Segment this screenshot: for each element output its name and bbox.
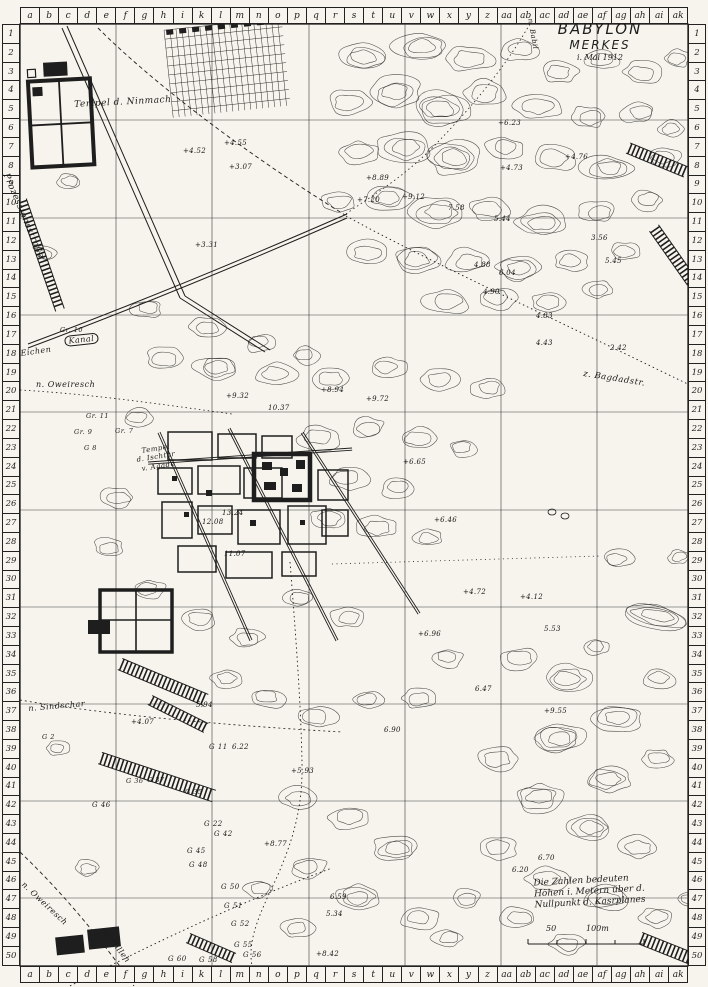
grid-number-cell: 28 <box>2 532 20 551</box>
grid-letter-cell: o <box>268 7 287 24</box>
grid-number-cell: 20 <box>688 381 706 400</box>
grid-letter-cell: ab <box>516 7 535 24</box>
map-title-date: i. Mai 1912 <box>540 53 660 62</box>
grid-number-cell: 34 <box>688 645 706 664</box>
grid-number-cell: 12 <box>688 231 706 250</box>
grid-number-cell: 23 <box>2 438 20 457</box>
grid-letter-cell: q <box>306 966 325 983</box>
grid-letter-cell: ac <box>535 966 554 983</box>
grid-number-cell: 18 <box>688 344 706 363</box>
grid-letter-cell: i <box>173 7 192 24</box>
grid-letter-cell: c <box>58 966 77 983</box>
grid-number-cell: 33 <box>688 626 706 645</box>
grid-letter-cell: a <box>20 966 39 983</box>
grid-number-cell: 19 <box>688 363 706 382</box>
grid-number-cell: 48 <box>2 908 20 927</box>
grid-number-cell: 36 <box>2 682 20 701</box>
grid-number-cell: 1 <box>2 24 20 43</box>
grid-letter-cell: b <box>39 966 58 983</box>
grid-number-cell: 38 <box>2 720 20 739</box>
grid-letter-cell: m <box>230 7 249 24</box>
grid-letter-cell: n <box>249 7 268 24</box>
map-title-name: BABYLON <box>540 20 660 38</box>
grid-number-cell: 21 <box>2 400 20 419</box>
grid-letter-cell: ak <box>668 7 688 24</box>
grid-number-cell: 8 <box>2 156 20 175</box>
grid-number-cell: 49 <box>2 927 20 946</box>
grid-number-cell: 8 <box>688 156 706 175</box>
grid-number-cell: 19 <box>2 363 20 382</box>
grid-number-cell: 26 <box>2 494 20 513</box>
grid-number-cell: 42 <box>688 795 706 814</box>
grid-number-cell: 35 <box>688 664 706 683</box>
grid-number-cell: 10 <box>2 193 20 212</box>
scale-bar: 50 100m <box>524 924 656 952</box>
grid-number-cell: 45 <box>688 852 706 871</box>
grid-letter-cell: i <box>173 966 192 983</box>
grid-letter-cell: k <box>192 966 211 983</box>
grid-number-cell: 30 <box>688 570 706 589</box>
grid-number-cell: 27 <box>688 513 706 532</box>
grid-number-cell: 20 <box>2 381 20 400</box>
grid-letter-cell: v <box>401 7 420 24</box>
grid-letter-cell: ak <box>668 966 688 983</box>
grid-number-cell: 32 <box>688 607 706 626</box>
grid-letter-cell: w <box>420 7 439 24</box>
grid-number-cell: 2 <box>688 43 706 62</box>
grid-number-cell: 37 <box>2 701 20 720</box>
grid-number-cell: 39 <box>688 739 706 758</box>
grid-letter-cell: s <box>344 7 363 24</box>
grid-letter-cell: y <box>458 966 477 983</box>
grid-number-cell: 44 <box>688 833 706 852</box>
grid-letter-cell: p <box>287 7 306 24</box>
grid-number-cell: 3 <box>688 62 706 81</box>
grid-number-cell: 42 <box>2 795 20 814</box>
grid-letter-cell: af <box>592 966 611 983</box>
grid-number-cell: 3 <box>2 62 20 81</box>
grid-number-cell: 14 <box>688 269 706 288</box>
grid-number-cell: 27 <box>2 513 20 532</box>
grid-number-cell: 4 <box>688 80 706 99</box>
grid-letter-cell: aa <box>497 966 516 983</box>
grid-number-cell: 33 <box>2 626 20 645</box>
grid-letter-cell: l <box>211 7 230 24</box>
grid-number-cell: 15 <box>688 287 706 306</box>
grid-letter-cell: ah <box>630 966 649 983</box>
grid-number-cell: 24 <box>2 457 20 476</box>
grid-letter-cell: u <box>382 966 401 983</box>
grid-number-cell: 7 <box>688 137 706 156</box>
grid-number-cell: 39 <box>2 739 20 758</box>
grid-letter-cell: ad <box>554 966 573 983</box>
grid-letter-cell: ai <box>649 966 668 983</box>
grid-letter-cell: d <box>77 966 96 983</box>
grid-number-cell: 41 <box>688 777 706 796</box>
grid-letter-cell: u <box>382 7 401 24</box>
grid-letter-cell: b <box>39 7 58 24</box>
grid-number-cell: 9 <box>2 175 20 194</box>
grid-letter-cell: z <box>478 966 497 983</box>
grid-number-cell: 1 <box>688 24 706 43</box>
grid-number-cell: 16 <box>2 306 20 325</box>
grid-number-cell: 7 <box>2 137 20 156</box>
grid-number-cell: 25 <box>2 476 20 495</box>
grid-number-cell: 4 <box>2 80 20 99</box>
map-sheet: abcdefghiklmnopqrstuvwxyzaaabacadaeafaga… <box>0 0 708 987</box>
grid-number-cell: 15 <box>2 287 20 306</box>
grid-number-cell: 11 <box>688 212 706 231</box>
grid-letter-cell: w <box>420 966 439 983</box>
grid-number-cell: 17 <box>2 325 20 344</box>
grid-number-cell: 50 <box>2 946 20 966</box>
grid-letter-cell: t <box>363 7 382 24</box>
grid-numbers-left: 1234567891011121314151617181920212223242… <box>2 24 20 966</box>
grid-number-cell: 34 <box>2 645 20 664</box>
grid-letter-cell: ab <box>516 966 535 983</box>
grid-number-cell: 6 <box>2 118 20 137</box>
grid-letter-cell: e <box>96 966 115 983</box>
map-canvas <box>0 0 708 987</box>
grid-number-cell: 36 <box>688 682 706 701</box>
grid-number-cell: 26 <box>688 494 706 513</box>
grid-number-cell: 40 <box>688 758 706 777</box>
grid-number-cell: 21 <box>688 400 706 419</box>
grid-number-cell: 41 <box>2 777 20 796</box>
grid-letter-cell: r <box>325 7 344 24</box>
grid-number-cell: 12 <box>2 231 20 250</box>
map-title: BABYLON MERKES i. Mai 1912 <box>540 20 660 62</box>
grid-letter-cell: aa <box>497 7 516 24</box>
grid-letter-cell: m <box>230 966 249 983</box>
grid-letter-cell: e <box>96 7 115 24</box>
grid-number-cell: 9 <box>688 175 706 194</box>
grid-number-cell: 11 <box>2 212 20 231</box>
grid-number-cell: 2 <box>2 43 20 62</box>
grid-letter-cell: c <box>58 7 77 24</box>
grid-number-cell: 24 <box>688 457 706 476</box>
grid-number-cell: 13 <box>688 250 706 269</box>
grid-number-cell: 46 <box>2 871 20 890</box>
grid-number-cell: 49 <box>688 927 706 946</box>
grid-number-cell: 35 <box>2 664 20 683</box>
grid-letters-bottom: abcdefghiklmnopqrstuvwxyzaaabacadaeafaga… <box>20 966 688 983</box>
grid-letter-cell: h <box>153 966 172 983</box>
grid-number-cell: 32 <box>2 607 20 626</box>
grid-number-cell: 31 <box>688 588 706 607</box>
grid-number-cell: 37 <box>688 701 706 720</box>
grid-number-cell: 50 <box>688 946 706 966</box>
grid-number-cell: 31 <box>2 588 20 607</box>
grid-letter-cell: q <box>306 7 325 24</box>
grid-letter-cell: f <box>115 966 134 983</box>
grid-letter-cell: t <box>363 966 382 983</box>
grid-number-cell: 28 <box>688 532 706 551</box>
grid-letter-cell: ae <box>573 966 592 983</box>
grid-number-cell: 25 <box>688 476 706 495</box>
grid-number-cell: 10 <box>688 193 706 212</box>
scale-bar-rule <box>524 924 656 952</box>
grid-number-cell: 44 <box>2 833 20 852</box>
grid-number-cell: 16 <box>688 306 706 325</box>
grid-letter-cell: s <box>344 966 363 983</box>
grid-number-cell: 40 <box>2 758 20 777</box>
grid-number-cell: 22 <box>688 419 706 438</box>
grid-number-cell: 17 <box>688 325 706 344</box>
grid-number-cell: 6 <box>688 118 706 137</box>
grid-number-cell: 14 <box>2 269 20 288</box>
grid-number-cell: 48 <box>688 908 706 927</box>
grid-number-cell: 43 <box>688 814 706 833</box>
grid-number-cell: 38 <box>688 720 706 739</box>
grid-number-cell: 47 <box>2 889 20 908</box>
grid-number-cell: 30 <box>2 570 20 589</box>
grid-number-cell: 29 <box>688 551 706 570</box>
grid-numbers-right: 1234567891011121314151617181920212223242… <box>688 24 706 966</box>
grid-number-cell: 43 <box>2 814 20 833</box>
grid-letter-cell: x <box>439 966 458 983</box>
grid-number-cell: 18 <box>2 344 20 363</box>
grid-letter-cell: k <box>192 7 211 24</box>
grid-letter-cell: p <box>287 966 306 983</box>
grid-letter-cell: v <box>401 966 420 983</box>
grid-number-cell: 5 <box>688 99 706 118</box>
grid-number-cell: 5 <box>2 99 20 118</box>
grid-letter-cell: d <box>77 7 96 24</box>
grid-letter-cell: z <box>478 7 497 24</box>
grid-letter-cell: g <box>134 966 153 983</box>
grid-letter-cell: x <box>439 7 458 24</box>
grid-letter-cell: f <box>115 7 134 24</box>
grid-letter-cell: ag <box>611 966 630 983</box>
grid-number-cell: 22 <box>2 419 20 438</box>
grid-letter-cell: h <box>153 7 172 24</box>
grid-number-cell: 29 <box>2 551 20 570</box>
grid-letter-cell: g <box>134 7 153 24</box>
grid-number-cell: 23 <box>688 438 706 457</box>
grid-letter-cell: r <box>325 966 344 983</box>
grid-letter-cell: l <box>211 966 230 983</box>
grid-letter-cell: o <box>268 966 287 983</box>
grid-number-cell: 13 <box>2 250 20 269</box>
grid-letter-cell: a <box>20 7 39 24</box>
grid-number-cell: 45 <box>2 852 20 871</box>
grid-letter-cell: y <box>458 7 477 24</box>
map-title-district: MERKES <box>540 38 660 52</box>
grid-letter-cell: n <box>249 966 268 983</box>
